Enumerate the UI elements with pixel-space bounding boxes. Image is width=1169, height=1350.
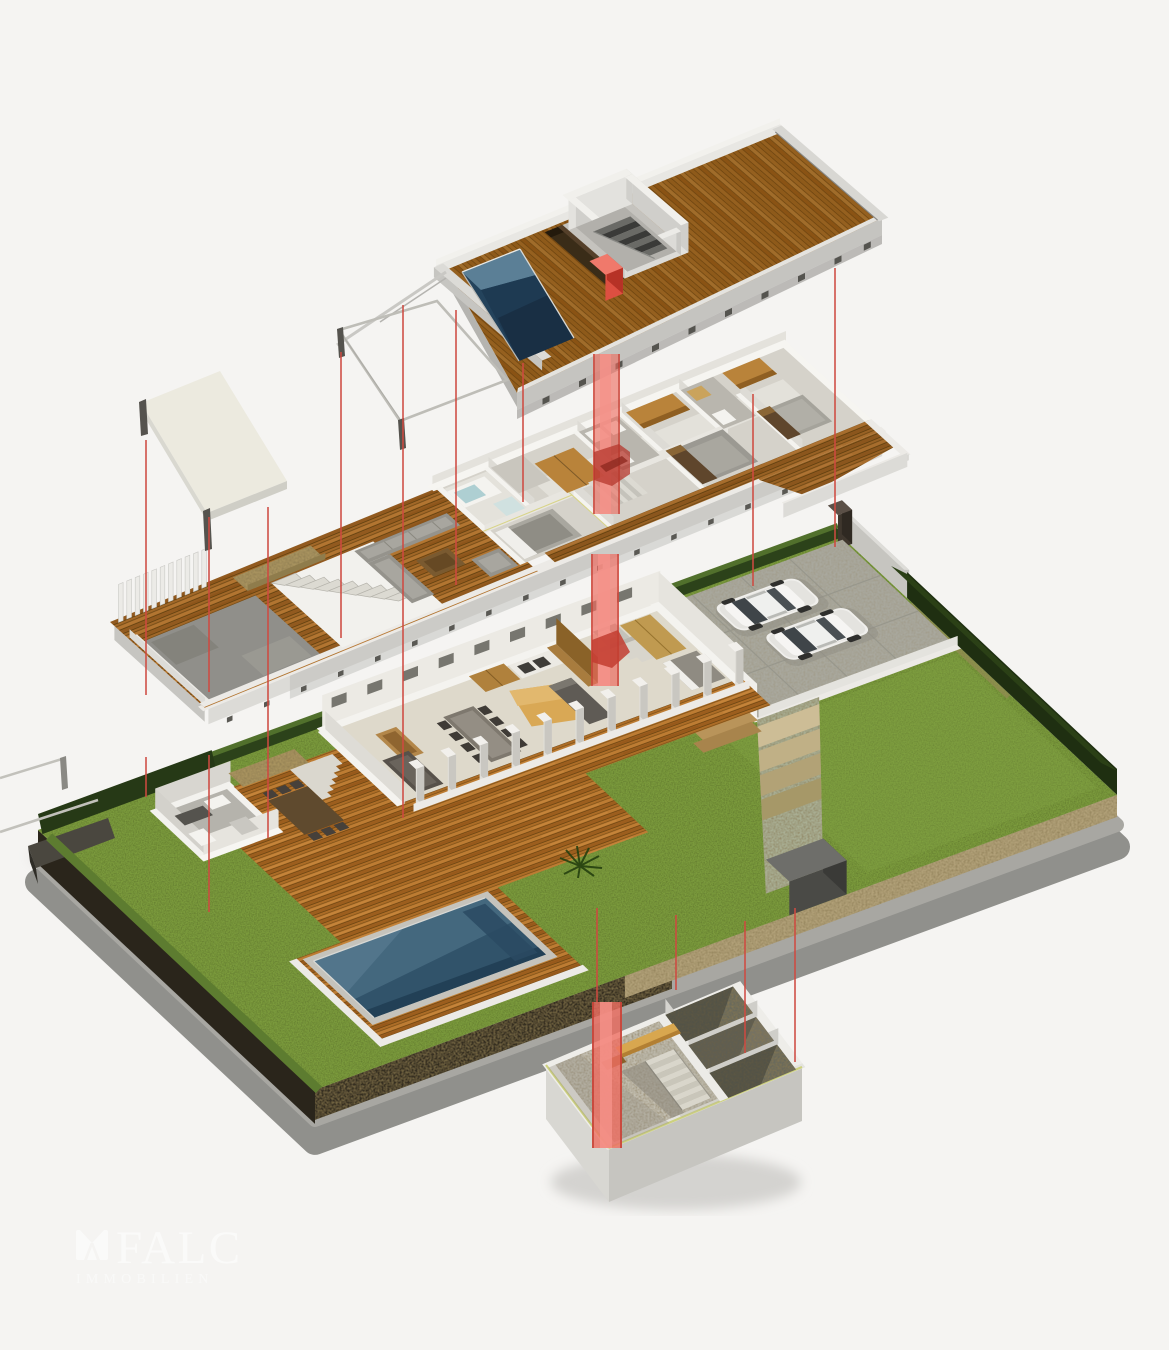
svg-text:IMMOBILIEN: IMMOBILIEN [76, 1272, 214, 1287]
svg-text:FALC: FALC [116, 1222, 243, 1274]
